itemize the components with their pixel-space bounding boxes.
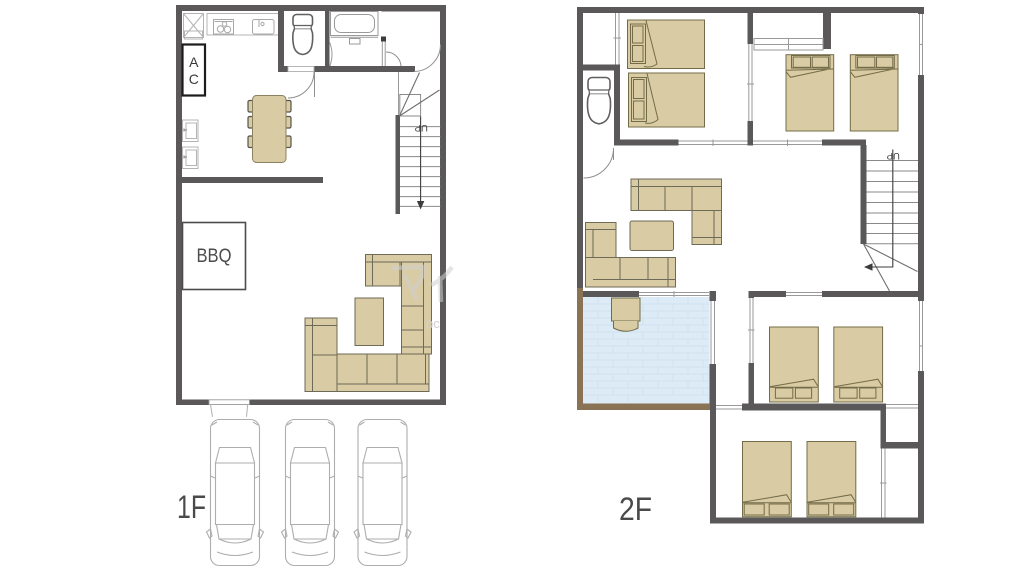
svg-text:UP: UP [415, 122, 428, 133]
svg-text:1F: 1F [177, 489, 206, 525]
svg-text:C: C [189, 71, 199, 87]
svg-text:UP: UP [887, 150, 900, 161]
svg-text:pc: pc [426, 316, 440, 331]
svg-text:2F: 2F [619, 491, 652, 527]
svg-text:A: A [189, 54, 199, 70]
svg-text:BBQ: BBQ [197, 246, 232, 267]
